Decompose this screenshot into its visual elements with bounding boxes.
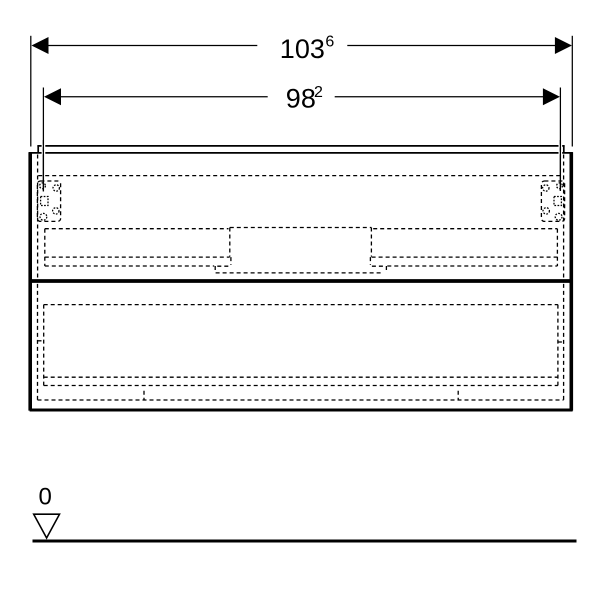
svg-text:0: 0 — [39, 483, 52, 510]
svg-text:6: 6 — [325, 33, 334, 50]
svg-text:103: 103 — [280, 34, 325, 64]
svg-text:98: 98 — [286, 84, 316, 114]
svg-text:2: 2 — [314, 84, 323, 101]
